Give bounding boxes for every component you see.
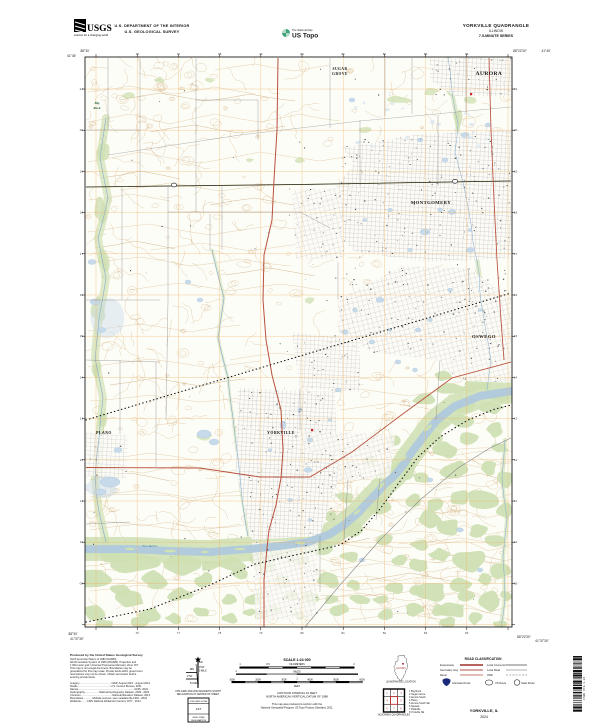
svg-text:entering private lands.: entering private lands.	[70, 675, 96, 679]
svg-text:ILLINOIS: ILLINOIS	[396, 668, 406, 670]
svg-text:ISBN 978-1-24: ISBN 978-1-24	[583, 676, 586, 700]
svg-text:41°37'30": 41°37'30"	[535, 639, 549, 643]
svg-text:UTM GRID ZONE: UTM GRID ZONE	[190, 701, 208, 703]
svg-text:USGS: USGS	[87, 24, 112, 34]
svg-text:51 MILS: 51 MILS	[190, 682, 199, 685]
svg-text:ROAD CLASSIFICATION: ROAD CLASSIFICATION	[465, 657, 502, 661]
svg-text:Local Road: Local Road	[487, 668, 501, 672]
svg-text:80: 80	[300, 631, 304, 635]
svg-text:GROVE: GROVE	[332, 72, 348, 76]
svg-text:2°52': 2°52'	[187, 675, 193, 678]
svg-text:State Route: State Route	[521, 681, 535, 685]
svg-text:5000: 5000	[333, 679, 339, 682]
svg-text:Interstate Route: Interstate Route	[452, 681, 471, 685]
svg-text:U.S. GEOLOGICAL SURVEY: U.S. GEOLOGICAL SURVEY	[125, 30, 180, 34]
svg-text:MILES: MILES	[293, 671, 301, 674]
svg-text:76: 76	[136, 631, 140, 635]
svg-text:National Geospatial Program US: National Geospatial Program US Topo Prod…	[261, 706, 334, 710]
svg-text:6000: 6000	[359, 679, 365, 682]
svg-text:81: 81	[342, 631, 346, 635]
svg-text:2024: 2024	[480, 715, 488, 719]
svg-text:AURORA: AURORA	[476, 71, 503, 77]
svg-text:4WD: 4WD	[487, 673, 493, 677]
svg-text:YORKVILLE, IL: YORKVILLE, IL	[470, 708, 499, 713]
svg-text:Rock: Rock	[93, 106, 100, 110]
svg-text:Expressway: Expressway	[440, 663, 455, 667]
svg-text:88°22'30": 88°22'30"	[517, 635, 531, 639]
svg-text:MN: MN	[190, 667, 194, 671]
svg-text:41°37'30": 41°37'30"	[70, 637, 84, 641]
svg-text:NORTH AMERICAN VERTICAL DATUM: NORTH AMERICAN VERTICAL DATUM OF 1988	[266, 695, 328, 699]
svg-text:Secondary Hwy: Secondary Hwy	[440, 668, 459, 672]
svg-text:QUADRANGLE LOCATION: QUADRANGLE LOCATION	[386, 681, 416, 684]
svg-text:7.5-MINUTE SERIES: 7.5-MINUTE SERIES	[479, 34, 514, 38]
svg-text:Ramp: Ramp	[440, 673, 447, 677]
svg-text:KILOMETERS: KILOMETERS	[289, 663, 305, 666]
svg-text:83: 83	[424, 631, 428, 635]
svg-text:GRID ZONE: GRID ZONE	[192, 717, 205, 719]
svg-text:The National Map: The National Map	[292, 28, 313, 32]
svg-text:U.S. DEPARTMENT OF THE INTERIO: U.S. DEPARTMENT OF THE INTERIOR	[115, 24, 190, 28]
svg-text:82: 82	[383, 631, 387, 635]
svg-text:79: 79	[259, 631, 263, 635]
svg-text:SUGAR: SUGAR	[332, 67, 347, 71]
svg-text:Produced by the United States: Produced by the United States Geological…	[70, 653, 143, 657]
svg-text:DECLINATION AT CENTER OF SHEET: DECLINATION AT CENTER OF SHEET	[177, 693, 220, 696]
svg-text:FEET: FEET	[294, 685, 301, 688]
svg-text:2000: 2000	[255, 679, 261, 682]
svg-text:41°45': 41°45'	[542, 49, 551, 53]
svg-text:US Topo: US Topo	[292, 33, 318, 40]
svg-text:SCALE 1:24 000: SCALE 1:24 000	[283, 658, 310, 662]
svg-text:MONTGOMERY: MONTGOMERY	[411, 200, 451, 205]
svg-text:84: 84	[465, 631, 469, 635]
svg-text:77: 77	[177, 631, 181, 635]
svg-text:88°30': 88°30'	[81, 49, 90, 53]
svg-text:OSWEGO: OSWEGO	[472, 334, 496, 339]
svg-text:This map was produced to confo: This map was produced to conform with th…	[272, 702, 323, 706]
svg-text:1000: 1000	[229, 679, 235, 682]
svg-text:ILLINOIS: ILLINOIS	[489, 29, 504, 33]
svg-text:4000: 4000	[307, 679, 313, 682]
svg-text:Wetlands.........FWS National: Wetlands.........FWS National Wetlands I…	[70, 699, 141, 703]
svg-text:Big: Big	[94, 101, 100, 105]
svg-text:3000: 3000	[281, 679, 287, 682]
svg-text:YORKVILLE: YORKVILLE	[267, 431, 295, 435]
svg-text:US Route: US Route	[495, 681, 507, 685]
svg-text:41°45': 41°45'	[67, 54, 76, 58]
svg-text:78: 78	[218, 631, 222, 635]
svg-text:88°22'30": 88°22'30"	[513, 49, 527, 53]
svg-text:Local Connector: Local Connector	[487, 663, 506, 667]
svg-text:Fox River: Fox River	[141, 544, 158, 548]
svg-text:YORKVILLE QUADRANGLE: YORKVILLE QUADRANGLE	[463, 23, 530, 28]
svg-text:88°30': 88°30'	[69, 632, 78, 636]
svg-text:GN: GN	[199, 661, 203, 664]
svg-text:16T: 16T	[196, 707, 201, 711]
svg-text:5 MILS: 5 MILS	[199, 670, 207, 673]
svg-text:DESIGNATION: DESIGNATION	[191, 719, 206, 722]
svg-text:science for a changing world: science for a changing world	[74, 33, 109, 37]
svg-text:ADJOINING QUADRANGLES: ADJOINING QUADRANGLES	[378, 714, 410, 717]
svg-text:PLANO: PLANO	[96, 431, 112, 435]
svg-text:8 Yorkville SE: 8 Yorkville SE	[409, 711, 425, 714]
